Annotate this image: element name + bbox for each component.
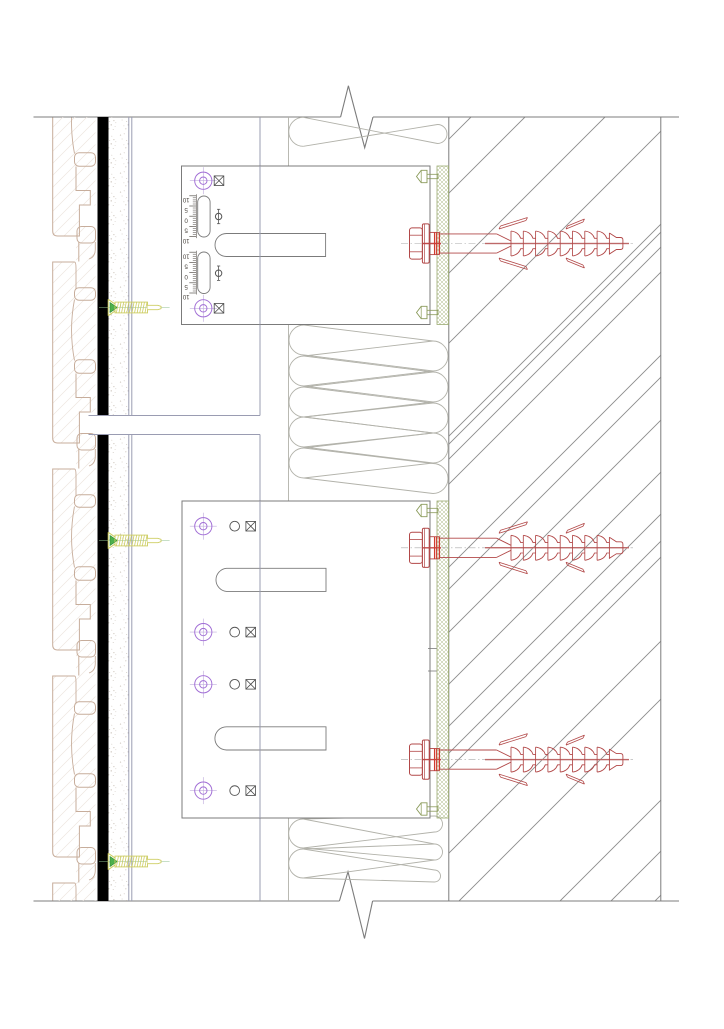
svg-text:5: 5	[184, 206, 188, 213]
svg-text:10: 10	[182, 237, 189, 244]
svg-text:0: 0	[184, 273, 188, 280]
svg-text:10: 10	[182, 293, 189, 300]
svg-text:5: 5	[184, 227, 188, 234]
svg-text:10: 10	[182, 252, 189, 259]
svg-text:0: 0	[184, 216, 188, 223]
svg-text:10: 10	[182, 196, 189, 203]
svg-text:5: 5	[184, 263, 188, 270]
svg-text:5: 5	[184, 283, 188, 290]
